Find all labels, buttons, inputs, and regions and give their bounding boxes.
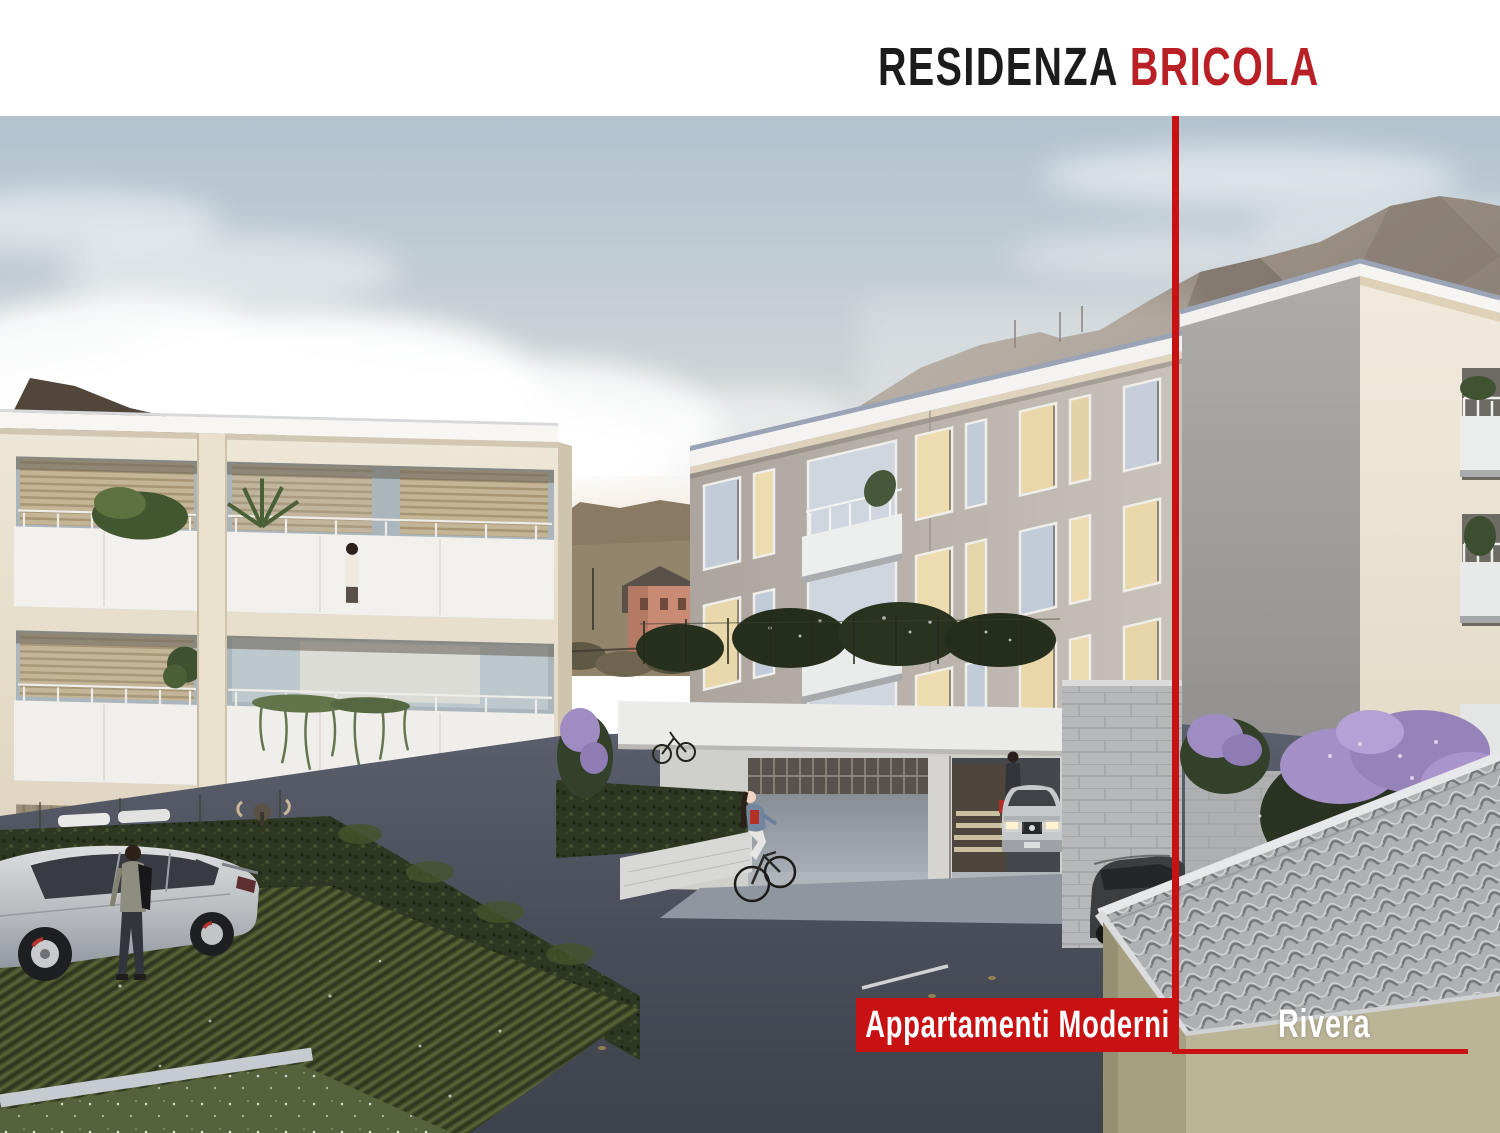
tagline-label: Appartamenti Moderni (865, 1006, 1170, 1044)
red-horizontal-line (1179, 1049, 1468, 1054)
balcony-person (345, 543, 359, 603)
tagline-banner: Appartamenti Moderni (856, 998, 1179, 1052)
brand-title: RESIDENZA BRICOLA (878, 40, 1320, 94)
architectural-rendering (0, 116, 1500, 1133)
mercedes-car (1002, 785, 1062, 852)
location-label: Rivera (1278, 1004, 1370, 1044)
brand-title-primary: RESIDENZA (878, 37, 1117, 97)
brand-title-accent: BRICOLA (1130, 37, 1320, 97)
red-vertical-line (1172, 116, 1179, 1054)
location-label-wrap: Rivera (1180, 1001, 1468, 1047)
